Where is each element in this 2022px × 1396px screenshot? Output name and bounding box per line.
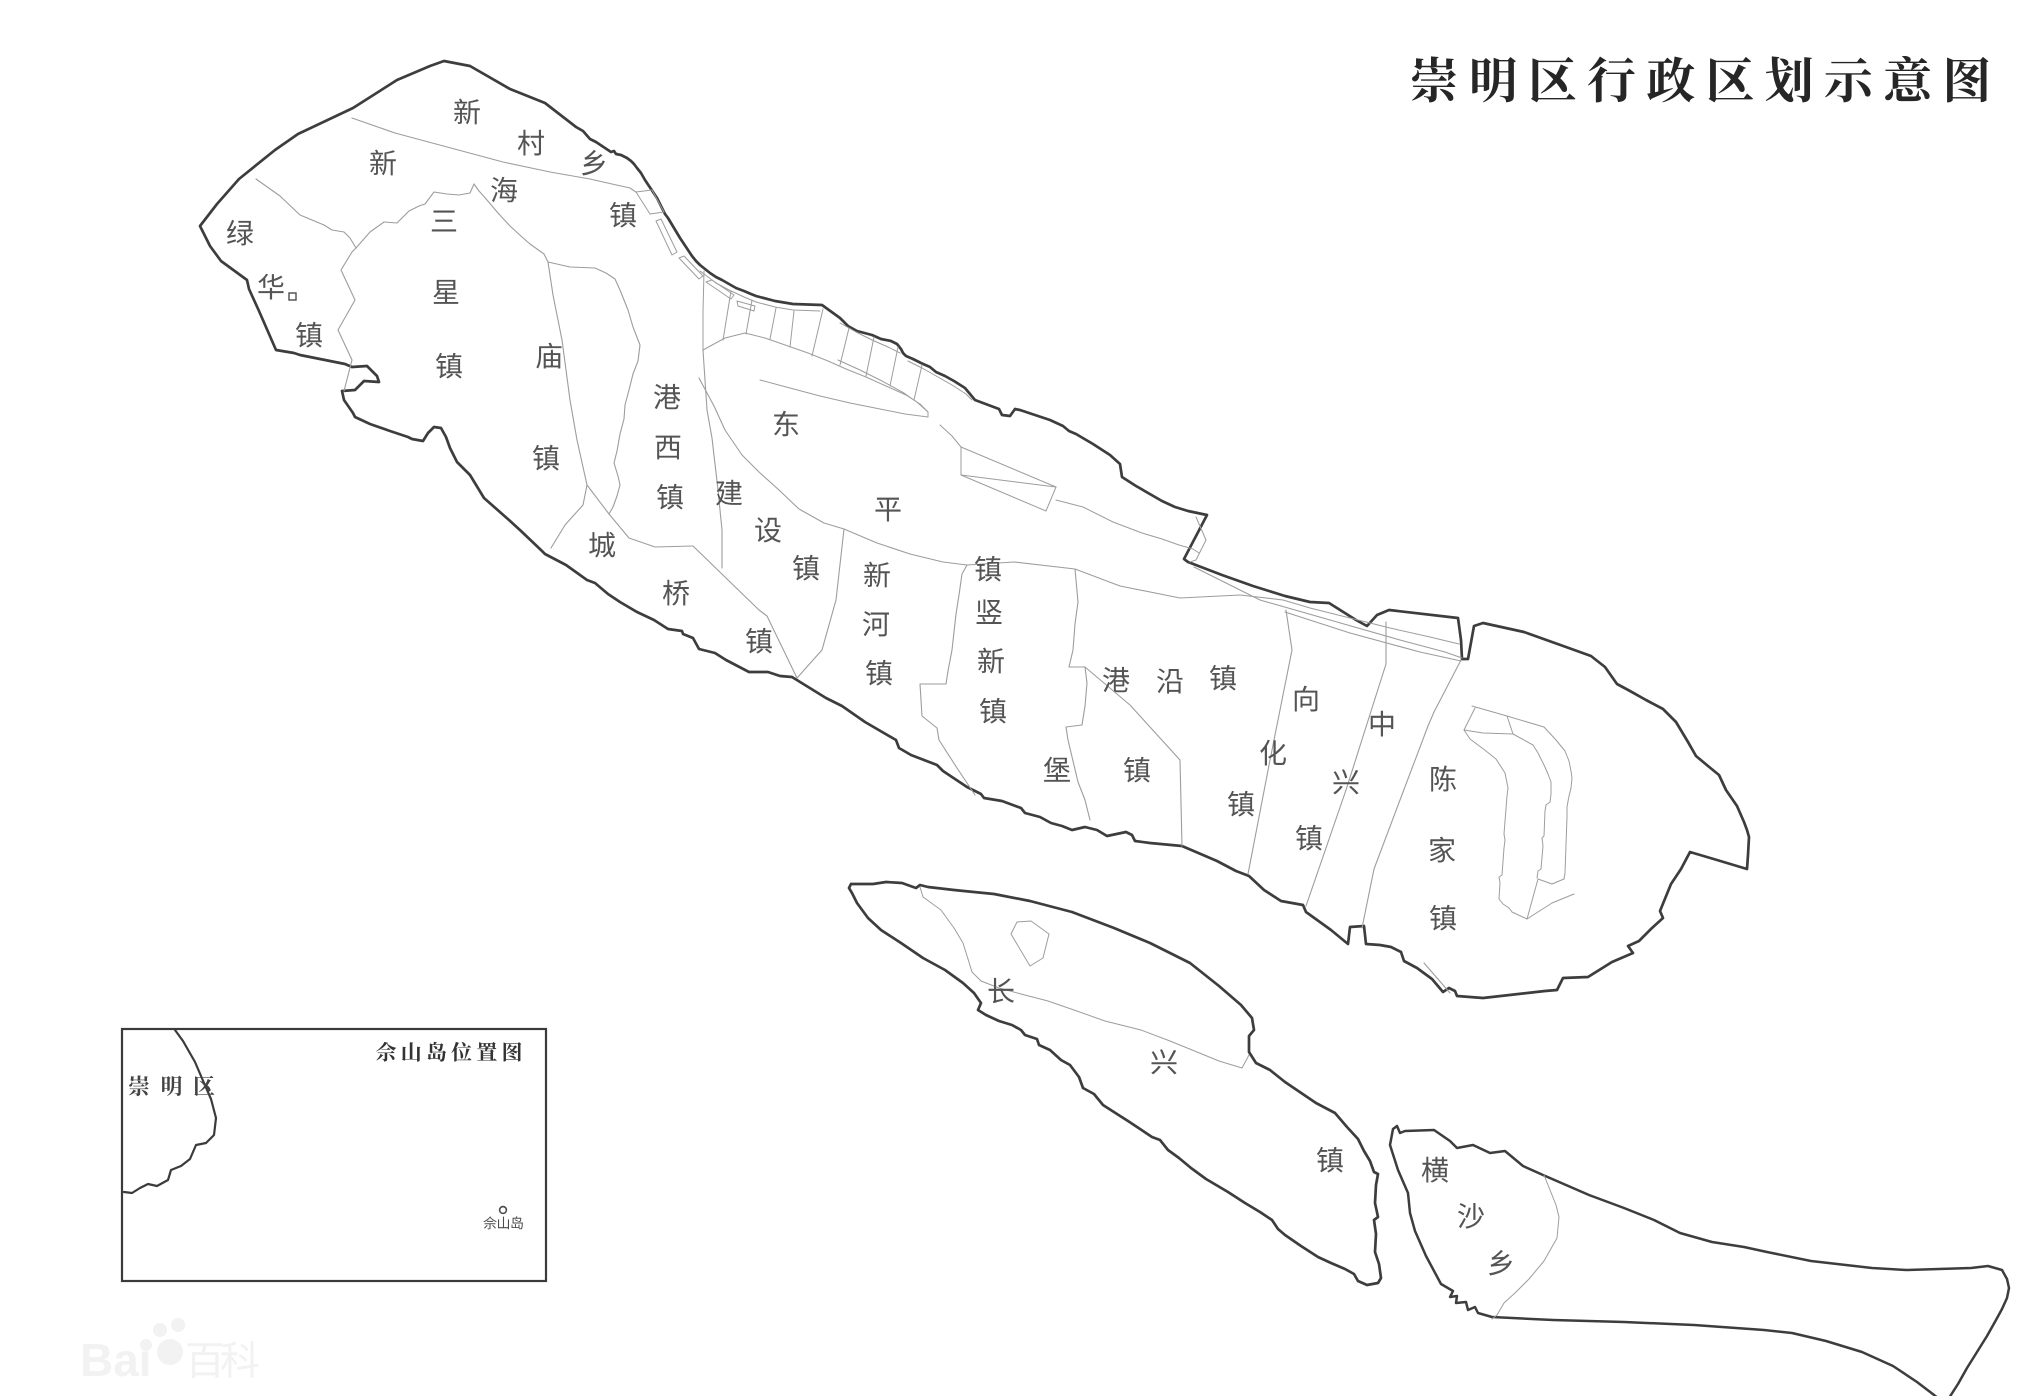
svg-text:Bai: Bai — [80, 1334, 152, 1386]
